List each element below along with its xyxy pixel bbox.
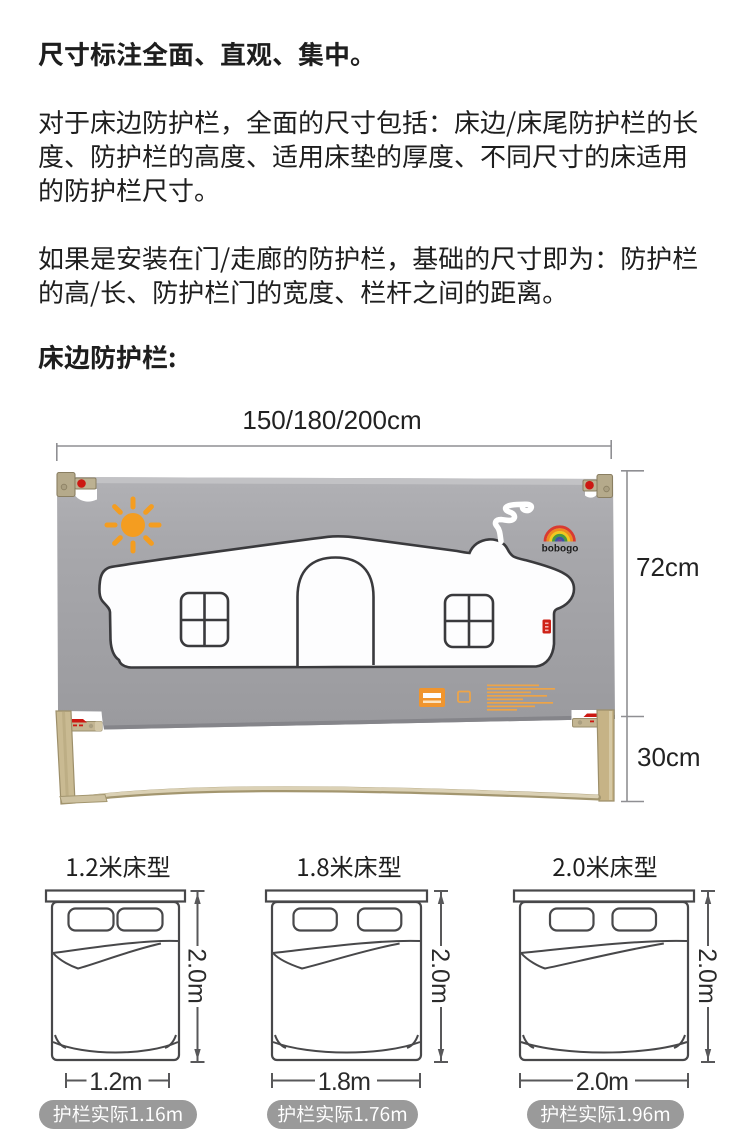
svg-text:2.0m: 2.0m	[576, 1068, 628, 1096]
svg-text:150/180/200cm: 150/180/200cm	[242, 405, 421, 435]
svg-text:30cm: 30cm	[637, 742, 701, 772]
svg-text:2.0m: 2.0m	[693, 948, 721, 1004]
svg-text:bobogo: bobogo	[542, 544, 579, 555]
svg-text:1.2m: 1.2m	[89, 1068, 141, 1096]
svg-text:1.8m: 1.8m	[318, 1068, 370, 1096]
svg-text:2.0m: 2.0m	[426, 948, 454, 1004]
svg-text:2.0m: 2.0m	[183, 948, 211, 1004]
svg-text:72cm: 72cm	[636, 552, 700, 582]
